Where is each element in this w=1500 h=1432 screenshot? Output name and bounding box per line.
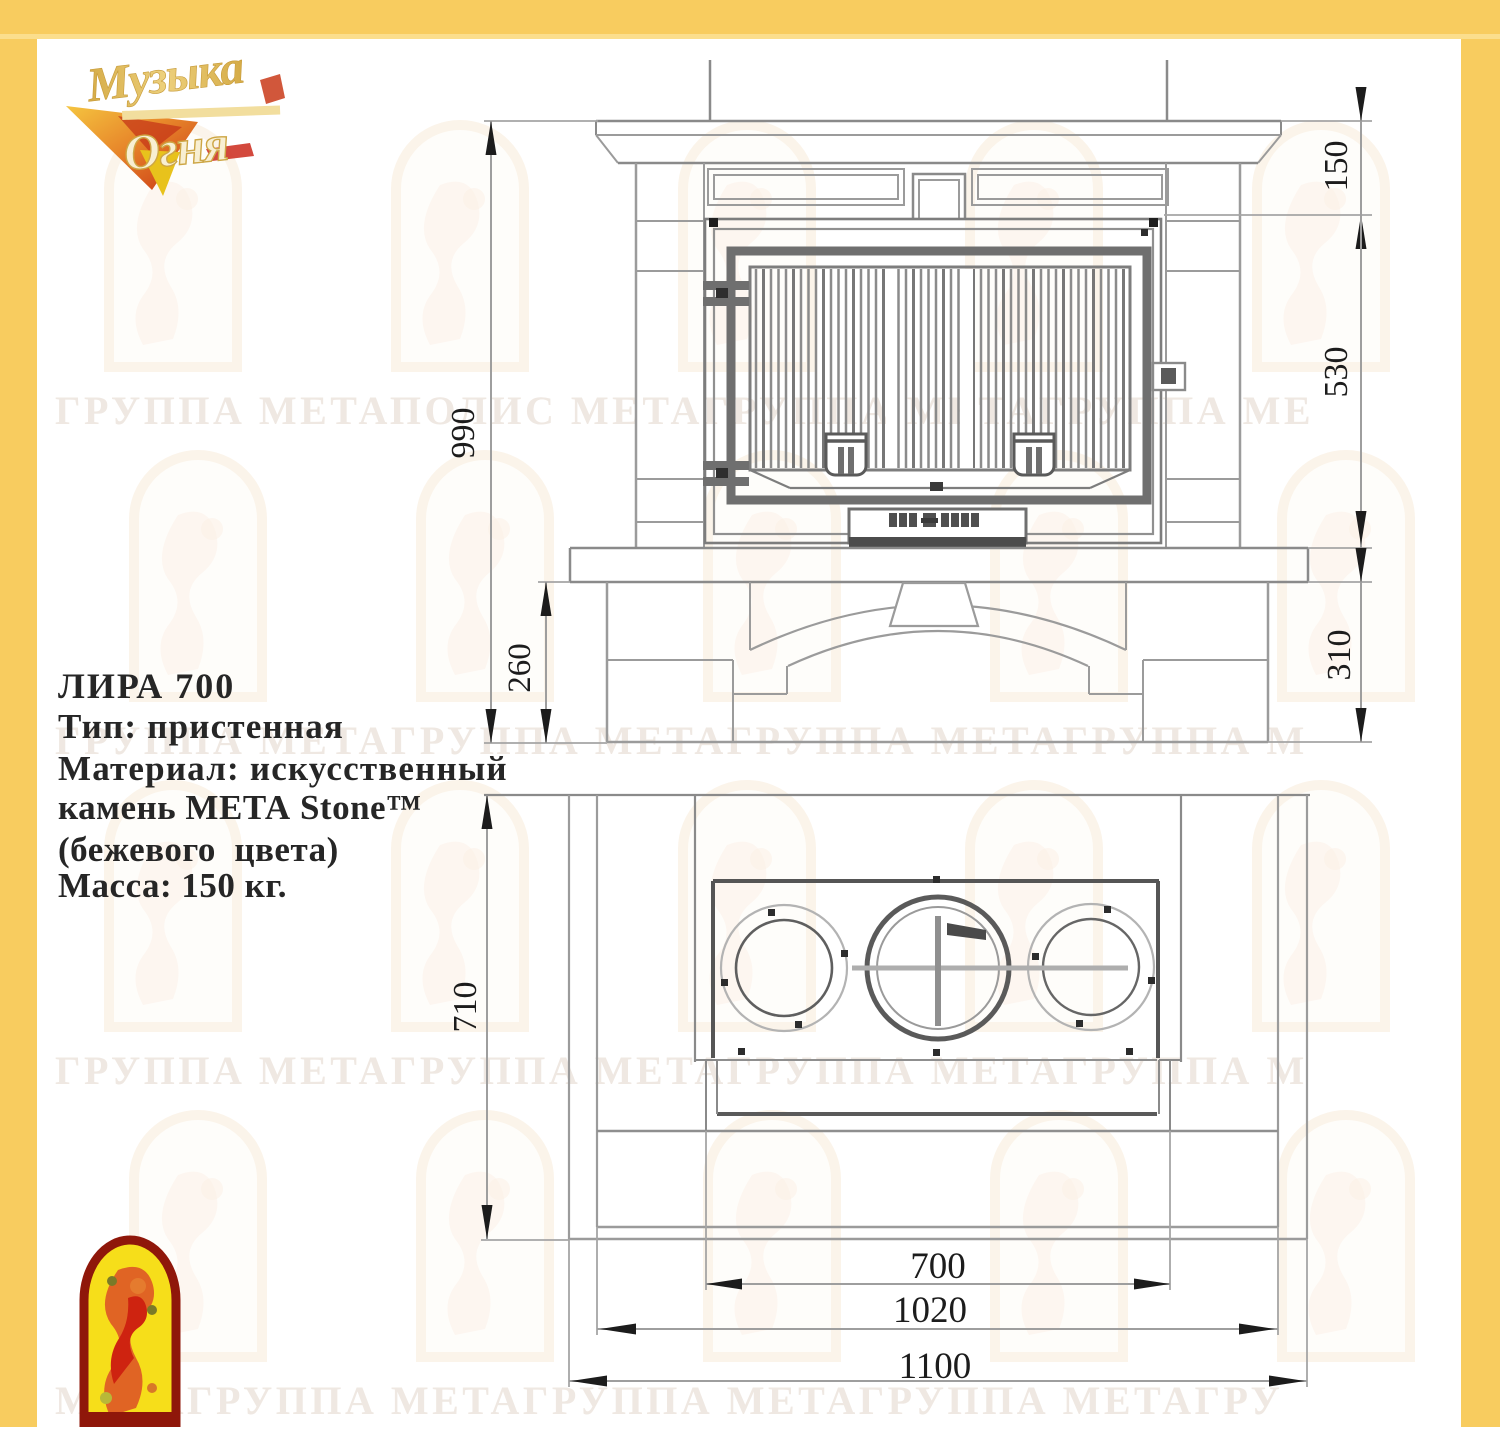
svg-text:камень МЕТА Stone™: камень МЕТА Stone™ (58, 788, 422, 827)
svg-text:Материал: искусственный: Материал: искусственный (58, 749, 508, 788)
svg-text:990: 990 (445, 408, 482, 459)
svg-text:700: 700 (910, 1246, 966, 1287)
svg-text:Тип: пристенная: Тип: пристенная (58, 707, 344, 746)
svg-text:(бежевого цвета): (бежевого цвета) (58, 830, 339, 869)
svg-text:150: 150 (1318, 141, 1355, 192)
svg-text:530: 530 (1318, 347, 1355, 398)
svg-text:Огня: Огня (121, 115, 231, 182)
svg-text:МЕТАГРУППА МЕТАГРУППА МЕТАГРУП: МЕТАГРУППА МЕТАГРУППА МЕТАГРУППА МЕТАГРУ (55, 1378, 1283, 1423)
svg-text:ГРУППА МЕТАГРУППА МЕТАГРУППА М: ГРУППА МЕТАГРУППА МЕТАГРУППА МЕТАГРУППА … (55, 1048, 1308, 1093)
svg-text:ЛИРА 700: ЛИРА 700 (58, 666, 235, 706)
svg-text:710: 710 (447, 982, 484, 1033)
svg-text:ГРУППА МЕТАПОЛИС МЕТАГРУППА МЕ: ГРУППА МЕТАПОЛИС МЕТАГРУППА МЕТАГРУППА М… (55, 388, 1314, 433)
svg-text:1100: 1100 (899, 1346, 972, 1387)
svg-text:260: 260 (502, 643, 538, 693)
svg-text:1020: 1020 (893, 1290, 967, 1331)
svg-text:310: 310 (1321, 630, 1358, 681)
svg-text:Масса: 150 кг.: Масса: 150 кг. (58, 866, 287, 905)
